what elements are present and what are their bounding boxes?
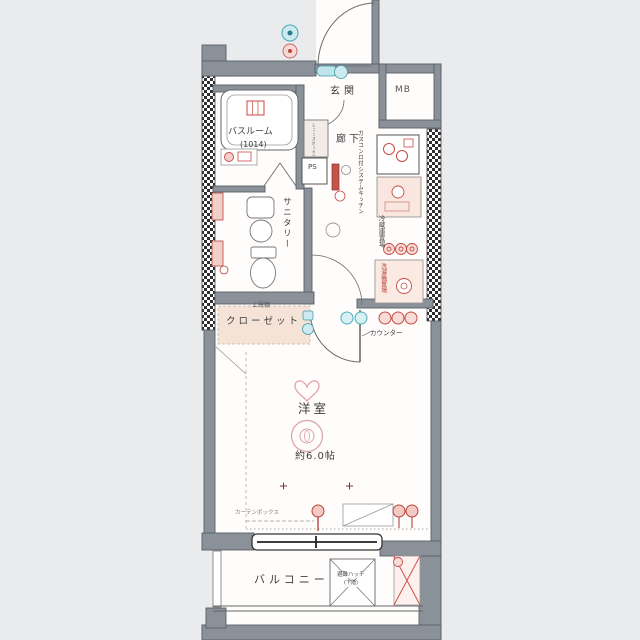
ac-outlet-icon-1	[393, 505, 405, 517]
wall-entry-frame	[372, 0, 379, 68]
kitchen-label: ガスコンロ付システムキッチン	[356, 130, 363, 244]
ps-label: PS	[308, 164, 317, 172]
power-outlet-icon-1	[379, 312, 391, 324]
mb-label: MB	[395, 86, 411, 96]
kitchen-sink-icon	[392, 186, 404, 198]
washstand-mirror	[247, 197, 274, 218]
room-label: 洋室	[298, 402, 329, 416]
closet-switch-icon	[303, 311, 313, 320]
hatch-wall-right	[427, 129, 441, 321]
bath-faucet-icon	[225, 153, 234, 162]
fridge-label: 冷蔵庫置場	[377, 215, 384, 253]
wall-top-horizontal	[202, 61, 316, 76]
floorplan-canvas: 玄関 MB バスルーム (1014) 廊下 PS シューズボックス サニタリー …	[0, 0, 640, 640]
ac-outlet-icon-2	[406, 505, 418, 517]
balcony-window	[252, 534, 382, 550]
hatch-floor-label: (下階)	[343, 581, 359, 587]
threshold-light-icon	[335, 66, 348, 79]
room-size-label: 約6.0帖	[295, 451, 336, 462]
threshold-switch-icon	[317, 66, 337, 76]
wall-bath-bottom	[213, 186, 265, 192]
washer-drain-icon	[397, 279, 412, 294]
sanitary-wall-unit-1	[212, 193, 223, 220]
wall-left-mid	[204, 330, 215, 543]
power-outlet-icon-3	[405, 312, 417, 324]
wall-window-left	[202, 533, 254, 550]
shoebox-box	[304, 120, 328, 157]
washbowl	[250, 220, 272, 242]
wall-mb-bottom	[379, 120, 441, 128]
bathroom-size-label: (1014)	[240, 141, 267, 150]
hatch-label: 避難ハッチ	[336, 572, 366, 578]
sanitary-wall-unit-2	[212, 241, 223, 266]
balcony-left-rail	[213, 551, 221, 607]
washer-label: 洗濯機置場	[379, 263, 386, 299]
curtain-outlet-icon	[312, 505, 324, 517]
water-heater-icon	[394, 558, 403, 567]
curtain-box-label: カーテンボックス	[235, 510, 279, 516]
closet-shelf-label: 上段棚	[252, 303, 270, 310]
wall-sanitary-right	[304, 188, 312, 304]
genkan-label: 玄関	[330, 86, 358, 97]
closet-label: クローゼット	[226, 317, 301, 327]
bathroom-label: バスルーム	[228, 128, 273, 138]
closet-outlet-icon	[303, 324, 314, 335]
balcony-label: バルコニー	[254, 574, 329, 586]
shoebox-label: シューズボックス	[310, 123, 315, 156]
kitchen-outlet-row	[384, 244, 418, 255]
floorplan-drawing	[0, 0, 640, 640]
wall-bottom-bar	[202, 625, 441, 640]
wall-right-mid	[431, 321, 441, 543]
bath-vent-icon	[247, 101, 264, 115]
tv-outlet-icon-1	[341, 312, 353, 324]
wall-window-right	[380, 541, 441, 556]
hall-alarm-icon	[332, 164, 339, 190]
power-outlet-icon-2	[392, 312, 404, 324]
wall-mb-divider	[379, 64, 386, 127]
sanitary-label: サニタリー	[281, 197, 290, 259]
toilet-tank	[251, 247, 276, 258]
wall-balcony-right-column	[419, 556, 441, 627]
toilet-bowl	[251, 258, 276, 288]
tv-outlet-icon-2	[355, 312, 367, 324]
wall-right-top	[434, 64, 441, 129]
counter-label: カウンター	[370, 330, 403, 337]
